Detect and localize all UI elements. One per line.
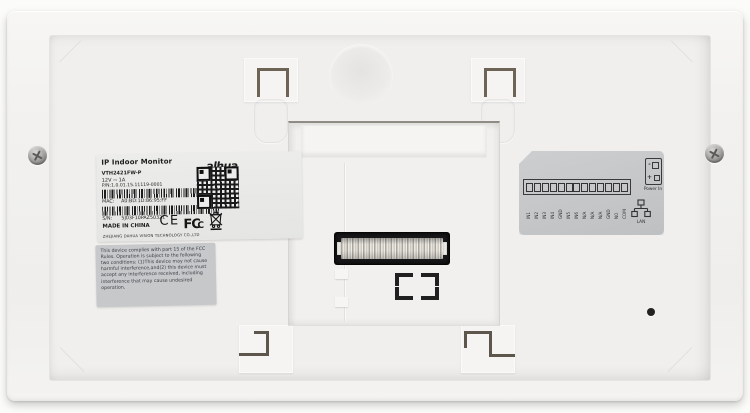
- mac-value: A0:BD:1D:86:95:FF: [121, 199, 167, 205]
- connector-clip: [337, 242, 341, 255]
- product-photo: IP Indoor Monitor alhua TECHNOLOGY VTH24…: [0, 0, 750, 413]
- terminal-label: N/A: [581, 197, 589, 219]
- monitor-rear-panel: IP Indoor Monitor alhua TECHNOLOGY VTH24…: [7, 11, 743, 401]
- company-name: ZHEJIANG DAHUA VISION TECHNOLOGY CO.,LTD: [103, 232, 200, 239]
- pinhole: [647, 308, 655, 316]
- circular-indent: [329, 44, 393, 108]
- connector-clip: [443, 242, 447, 255]
- terminal-box: [613, 183, 620, 192]
- terminal-box: [621, 183, 628, 192]
- model-number: VTH2421FW-P: [102, 170, 142, 177]
- terminal-label: IN4: [549, 197, 557, 219]
- part-number: P/N:1.0.01.15.11119-0001: [102, 183, 163, 189]
- mount-hook-top-right: [484, 68, 516, 97]
- mount-slot: [254, 99, 288, 143]
- terminal-label-row: IN1IN2IN3IN4GNDIN5IN6N/AN/AN/AGNDNOCOM: [523, 197, 631, 219]
- terminal-box: [534, 183, 541, 192]
- recess-tab: [335, 297, 348, 307]
- weee-icon: [207, 209, 224, 235]
- terminal-label: IN2: [533, 197, 541, 219]
- ribbon-connector-socket: [335, 233, 449, 264]
- terminal-box: [573, 183, 580, 192]
- terminal-label: N/A: [597, 197, 605, 219]
- terminal-label: COM: [621, 197, 629, 219]
- terminal-label: GND: [605, 197, 613, 219]
- central-recess: [288, 121, 500, 326]
- terminal-box: [605, 183, 612, 192]
- mac-label: MAC:: [102, 199, 121, 204]
- terminal-label: IN6: [573, 197, 581, 219]
- terminal-box: [597, 183, 604, 192]
- made-in: MADE IN CHINA: [102, 223, 149, 230]
- serial-number: S/N:5J03F10PAZ50321: [102, 216, 165, 222]
- terminal-label: NO: [613, 197, 621, 219]
- recess-tab: [335, 269, 348, 279]
- sn-label: S/N:: [102, 216, 121, 221]
- terminal-label: N/A: [589, 197, 597, 219]
- terminal-box: [542, 183, 549, 192]
- terminal-box: [581, 183, 588, 192]
- mac-address: MAC:A0:BD:1D:86:95:FF: [102, 199, 167, 205]
- fcc-statement-text: This device complies with part 15 of the…: [100, 247, 211, 292]
- terminal-label: GND: [557, 197, 565, 219]
- terminal-box: [589, 183, 596, 192]
- recess-step: [301, 125, 487, 158]
- label-title: IP Indoor Monitor: [101, 157, 172, 166]
- connector-pins: [341, 238, 443, 259]
- terminal-box: [558, 183, 565, 192]
- terminal-label: IN3: [541, 197, 549, 219]
- terminal-box-row: [523, 179, 631, 195]
- lan-icon: [631, 199, 651, 222]
- screw-left: [28, 146, 47, 165]
- terminal-box: [566, 183, 573, 192]
- terminal-label: IN5: [565, 197, 573, 219]
- terminal-label: IN1: [525, 197, 533, 219]
- terminal-box: [526, 183, 533, 192]
- wiring-label: IN1IN2IN3IN4GNDIN5IN6N/AN/AN/AGNDNOCOM -…: [519, 151, 664, 235]
- fcc-mark: FCC: [183, 213, 204, 232]
- fcc-mark-sub: C: [197, 221, 204, 231]
- qr-code: [196, 166, 239, 209]
- lan-label: LAN: [631, 220, 651, 225]
- power-in-icon: - +: [645, 158, 662, 185]
- terminal-box: [550, 183, 557, 192]
- mount-hook-top-left: [257, 68, 289, 97]
- fcc-statement-label: This device complies with part 15 of the…: [95, 243, 216, 307]
- corner-bracket-cutout: [395, 273, 439, 300]
- screw-right: [705, 144, 724, 163]
- power-minus-sign: -: [648, 162, 651, 168]
- power-plus-sign: +: [647, 175, 652, 181]
- ce-mark: CE: [159, 213, 180, 228]
- product-info-label: IP Indoor Monitor alhua TECHNOLOGY VTH24…: [96, 151, 302, 242]
